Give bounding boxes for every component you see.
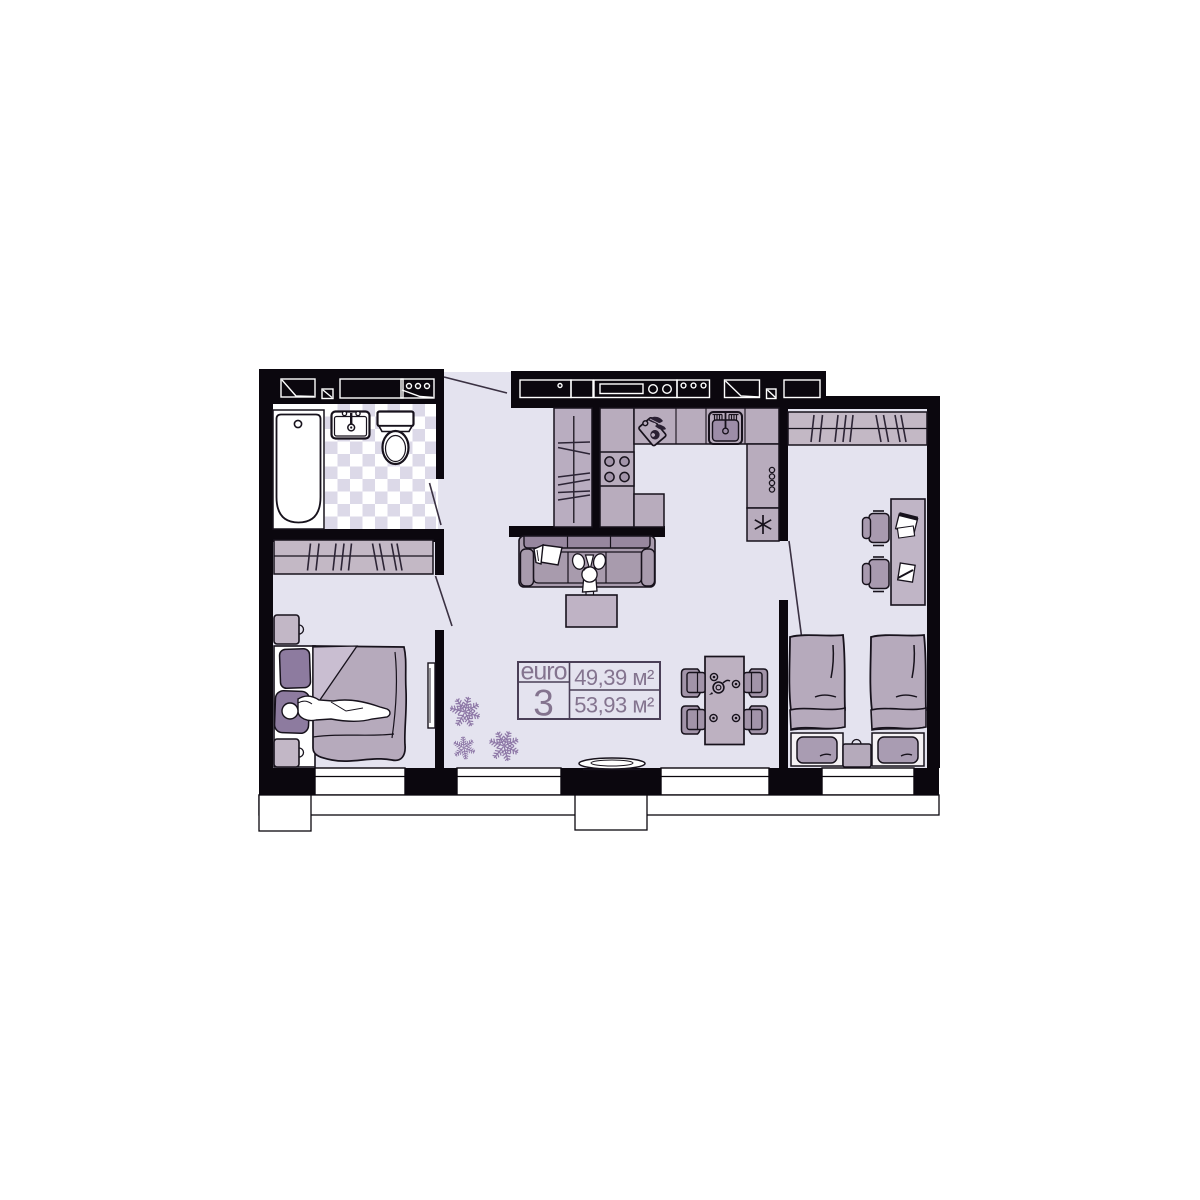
svg-text:euro: euro: [520, 658, 566, 686]
svg-text:49,39 м²: 49,39 м²: [574, 665, 654, 690]
svg-text:53,93 м²: 53,93 м²: [574, 693, 654, 718]
svg-text:3: 3: [533, 683, 554, 724]
